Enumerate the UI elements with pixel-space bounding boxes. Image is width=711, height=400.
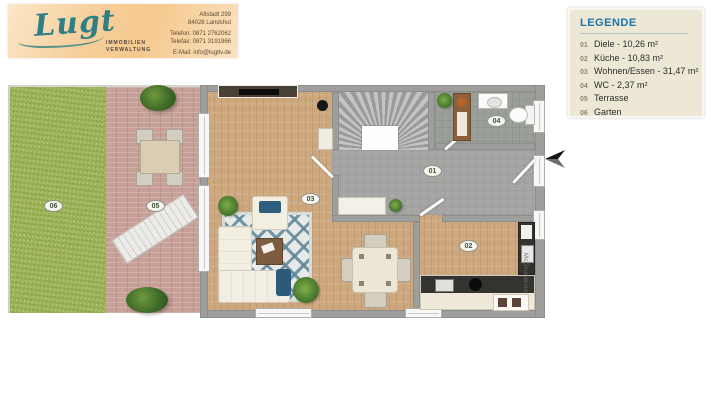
wall: [200, 310, 545, 318]
legend-num: 01: [580, 42, 594, 49]
module: [512, 298, 521, 307]
shrub-icon: [140, 85, 176, 111]
dining-chair: [364, 292, 387, 308]
legend-item-diele: 01 Diele - 10,26 m²: [580, 39, 692, 49]
table-detail: [386, 281, 391, 286]
plant-icon: [218, 196, 238, 216]
sink: [435, 279, 454, 292]
wall: [442, 215, 535, 222]
window: [198, 185, 210, 272]
cushion: [259, 201, 281, 213]
brand-tagline-line1: IMMOBILIEN: [106, 40, 146, 46]
speaker-icon: [317, 100, 328, 111]
floorplan: 01 02 03 04 05 06 McGrundriss: [8, 85, 560, 318]
floorplan-page: Lugt IMMOBILIEN VERWALTUNG Altstadt 299 …: [0, 0, 711, 400]
legend-box: LEGENDE 01 Diele - 10,26 m² 02 Küche - 1…: [568, 8, 704, 118]
legend-label: Küche - 10,83 m²: [594, 53, 663, 63]
vase-icon: [457, 97, 467, 107]
table-detail: [386, 254, 391, 259]
logo-flourish-icon: [18, 30, 104, 48]
contact-city: 84028 Landshut: [170, 19, 231, 27]
contact-block: Altstadt 299 84028 Landshut Telefon: 087…: [170, 11, 231, 57]
contact-street: Altstadt 299: [170, 11, 231, 19]
wall: [413, 222, 420, 310]
legend-num: 03: [580, 69, 594, 76]
room-marker-diele: 01: [423, 165, 442, 177]
staircase: [339, 92, 428, 150]
cabinet: [318, 128, 333, 150]
wall: [332, 215, 420, 222]
window: [198, 113, 210, 178]
legend-num: 06: [580, 110, 594, 117]
brand-tagline-line2: VERWALTUNG: [106, 47, 151, 53]
room-marker-garten: 06: [44, 200, 63, 212]
patio-table: [140, 140, 180, 174]
washbasin: [478, 93, 508, 109]
room-marker-wc: 04: [487, 115, 506, 127]
wall: [428, 92, 435, 150]
entrance-arrow-icon: [544, 148, 566, 170]
dining-table: [352, 247, 398, 293]
legend-item-kueche: 02 Küche - 10,83 m²: [580, 53, 692, 63]
watermark: McGrundriss: [522, 253, 528, 308]
module: [498, 298, 507, 307]
shrub-icon: [126, 287, 168, 313]
fridge: [521, 225, 532, 239]
contact-phone: Telefon: 0871 2762062: [170, 30, 231, 38]
window: [255, 308, 312, 318]
room-marker-terrasse: 05: [146, 200, 165, 212]
legend-num: 04: [580, 83, 594, 90]
plant-icon: [389, 199, 402, 212]
legend-item-terrasse: 05 Terrasse: [580, 93, 692, 103]
legend-label: WC - 2,37 m²: [594, 80, 648, 90]
legend-label: Garten: [594, 107, 622, 117]
toilet: [509, 107, 528, 123]
contact-fax: Telefax: 0871 3191966: [170, 38, 231, 46]
towels: [457, 112, 467, 136]
legend-divider: [580, 33, 688, 34]
brand-banner: Lugt IMMOBILIEN VERWALTUNG Altstadt 299 …: [8, 4, 238, 58]
coffee-table: [256, 238, 283, 265]
throw-blanket: [276, 269, 291, 296]
legend-label: Terrasse: [594, 93, 629, 103]
legend-item-wohnen-essen: 03 Wohnen/Essen - 31,47 m²: [580, 66, 692, 76]
legend-item-wc: 04 WC - 2,37 m²: [580, 80, 692, 90]
legend-title: LEGENDE: [580, 17, 692, 29]
tray: [261, 242, 275, 254]
contact-email: E-Mail: info@lugtiv.de: [170, 49, 231, 57]
basin-bowl: [487, 97, 502, 108]
plant-icon: [293, 277, 319, 303]
tv-unit: [218, 85, 298, 98]
legend-num: 02: [580, 56, 594, 63]
dining-chair: [396, 258, 411, 282]
hall-sideboard: [338, 197, 386, 215]
room-marker-kueche: 02: [459, 240, 478, 252]
table-detail: [359, 254, 364, 259]
wc-shelf: [453, 93, 471, 141]
kitchen-counter: [420, 275, 535, 310]
plant-icon: [437, 93, 452, 108]
room-marker-wohnen-essen: 03: [301, 193, 320, 205]
legend-label: Wohnen/Essen - 31,47 m²: [594, 66, 698, 76]
cooktop: [469, 278, 482, 291]
tv-icon: [239, 89, 279, 95]
stair-landing: [362, 126, 398, 150]
wall: [332, 92, 339, 150]
legend-item-garten: 06 Garten: [580, 107, 692, 117]
legend-num: 05: [580, 96, 594, 103]
armchair: [252, 196, 288, 230]
table-detail: [359, 281, 364, 286]
legend-label: Diele - 10,26 m²: [594, 39, 658, 49]
